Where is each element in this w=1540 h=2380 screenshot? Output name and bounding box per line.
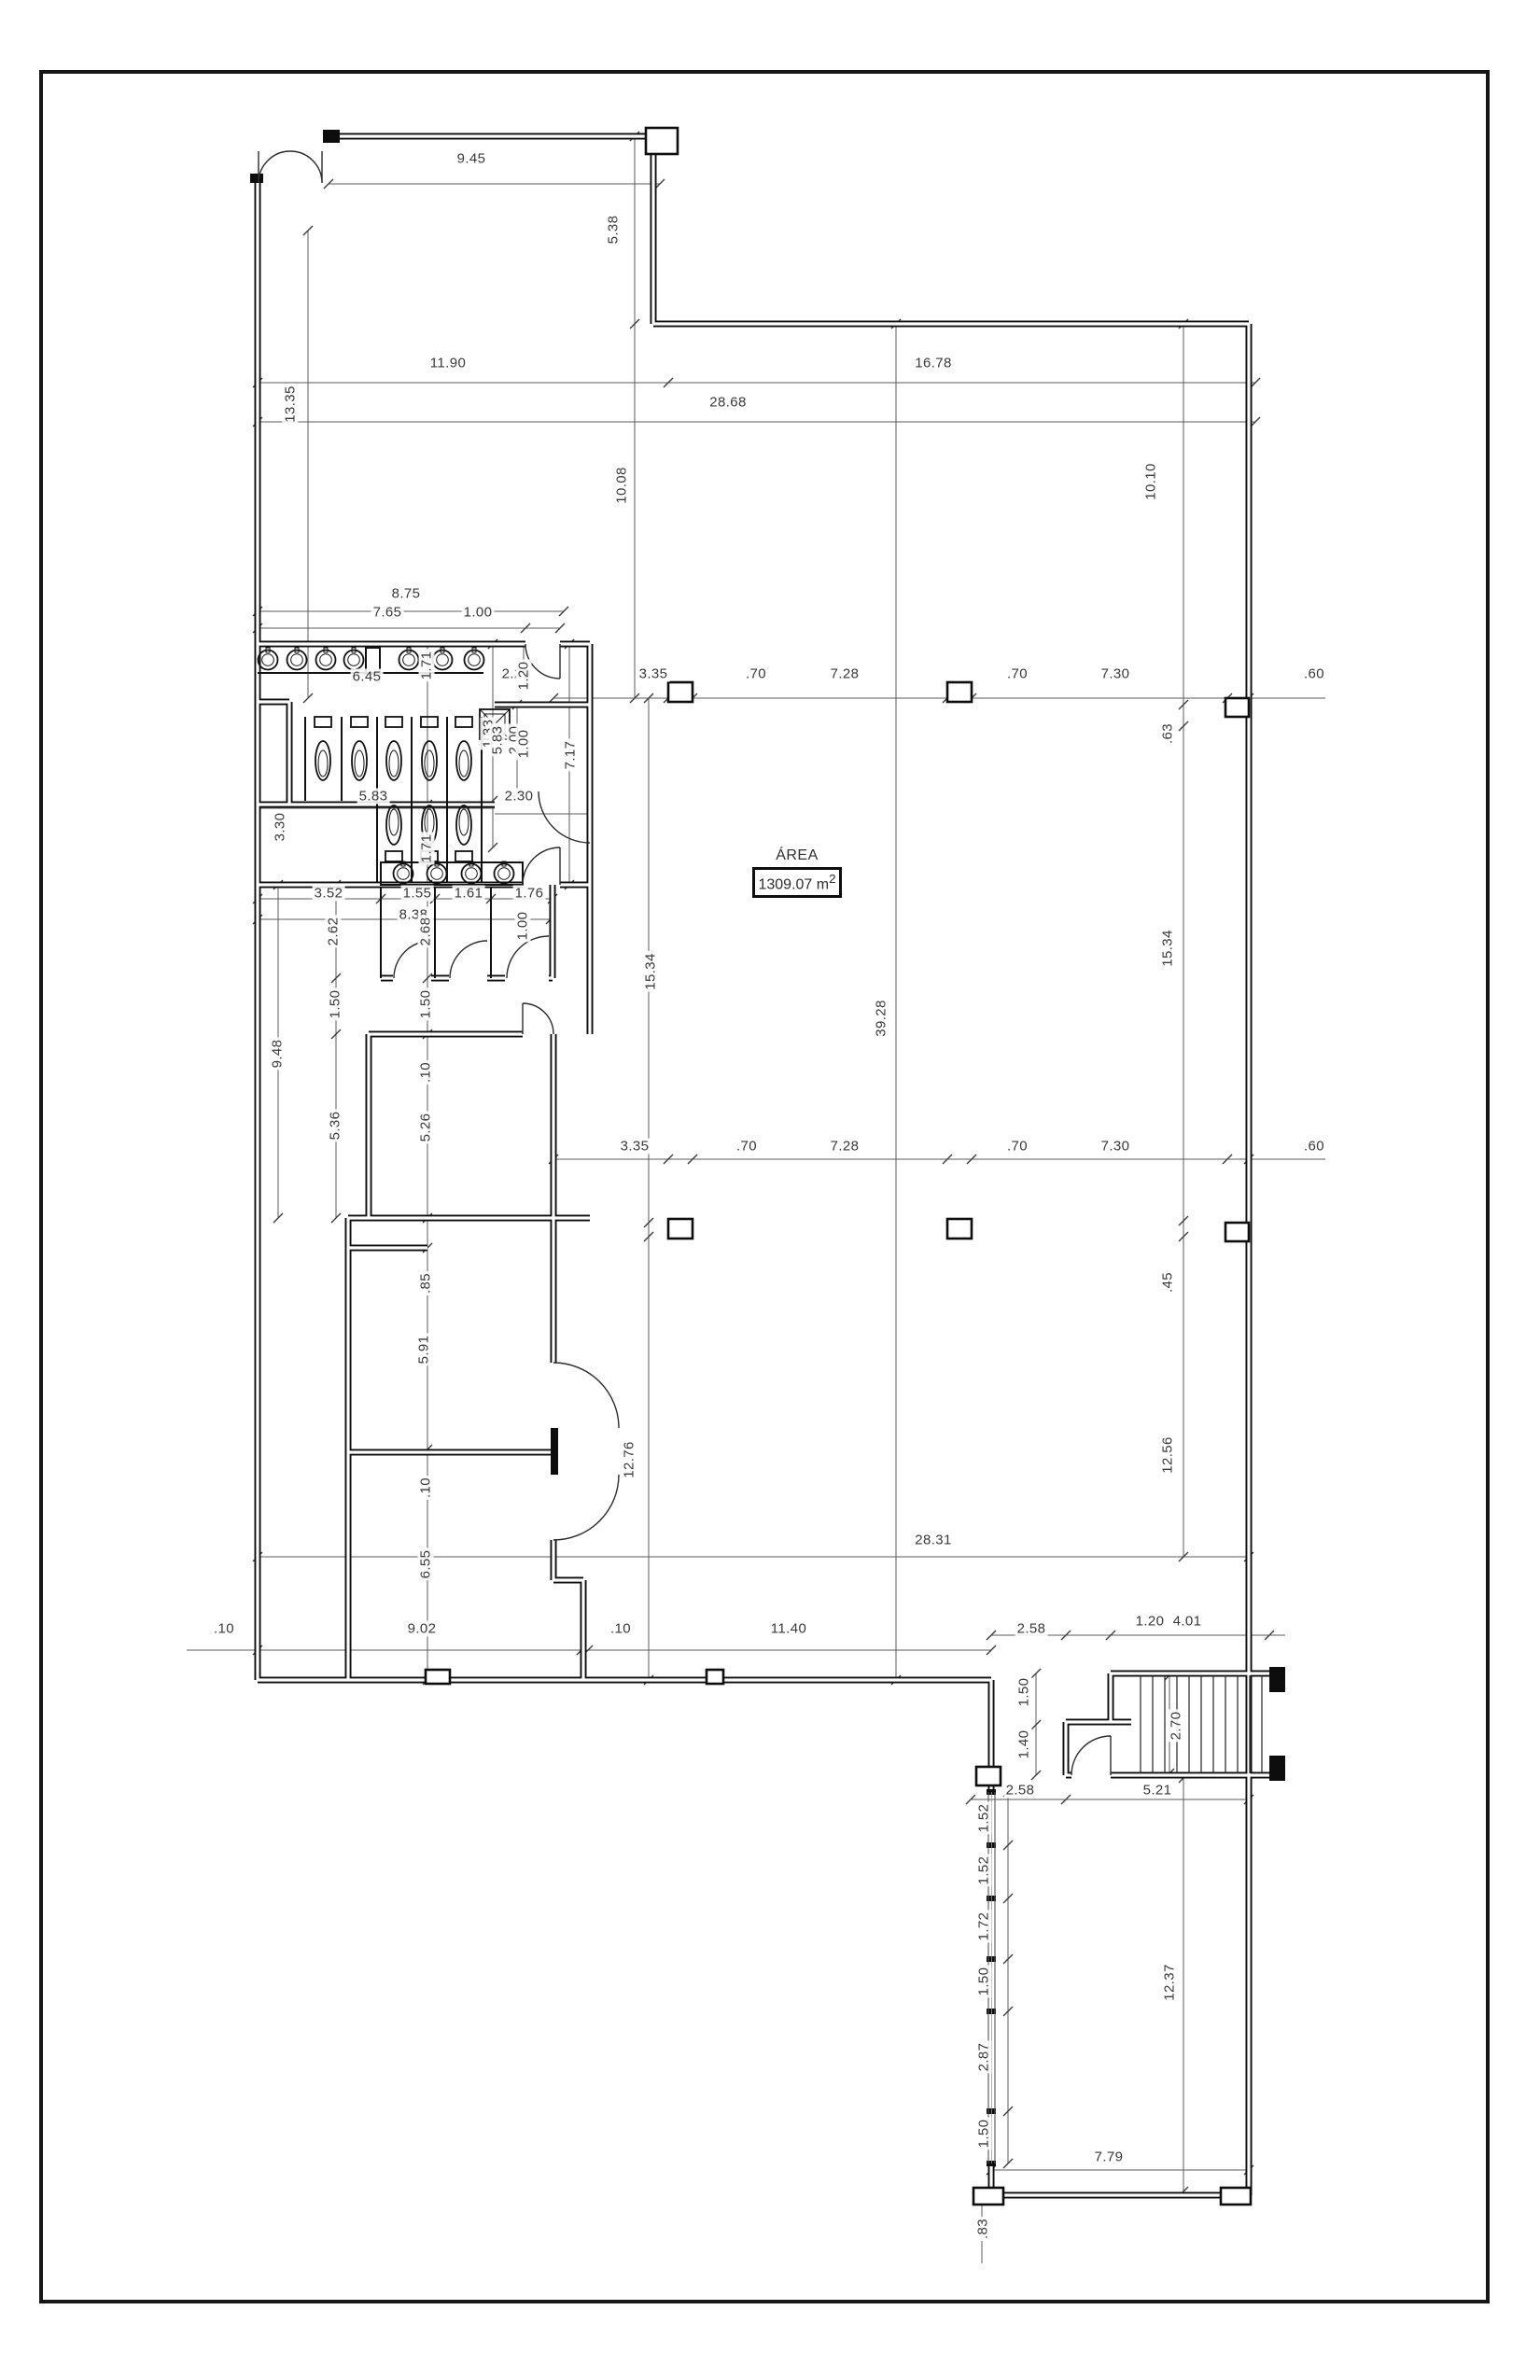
dimension-label: .83 xyxy=(975,2217,991,2241)
dimension-label: 5.91 xyxy=(416,1334,432,1366)
dimension-label: 12.76 xyxy=(622,1439,637,1480)
toilet xyxy=(315,717,331,780)
staircase xyxy=(1141,1675,1262,1773)
walls xyxy=(258,136,1269,2195)
dimension-label: 1.71 xyxy=(419,833,435,865)
dimension-label: 7.28 xyxy=(829,1139,861,1155)
wash-basin xyxy=(465,648,484,670)
dimension-label: 1.55 xyxy=(401,886,434,902)
wash-basin xyxy=(287,648,307,670)
dimension-label: 1.50 xyxy=(976,2118,992,2150)
dimension-label: 5.38 xyxy=(606,214,622,246)
area-title: ÁREA xyxy=(752,847,842,864)
dimension-label: 1.00 xyxy=(462,605,495,621)
dimension-label: 1.52 xyxy=(976,1802,992,1835)
dimension-label: .70 xyxy=(1005,666,1029,682)
dimension-label: 7.30 xyxy=(1099,666,1132,682)
dimension-label: .60 xyxy=(1302,666,1326,682)
wash-basin xyxy=(394,861,413,884)
dimension-label: 5.83 xyxy=(490,724,506,757)
dimension-label: 1.52 xyxy=(976,1855,992,1887)
dimension-label: 11.40 xyxy=(769,1621,808,1637)
dimension-lines xyxy=(187,136,1325,2263)
structural-columns xyxy=(426,128,1251,2205)
dimension-label: 15.34 xyxy=(1160,928,1176,969)
dimension-label: 1.20 xyxy=(1134,1614,1167,1630)
dimension-label: .10 xyxy=(609,1621,633,1637)
dimension-label: 1.76 xyxy=(513,886,546,902)
dimension-label: 5.26 xyxy=(418,1112,434,1144)
dimension-label: 13.35 xyxy=(283,384,299,425)
dimension-label: 39.28 xyxy=(874,998,889,1039)
dimension-label: 15.34 xyxy=(643,951,659,992)
floor-plan-drawing xyxy=(0,0,1540,2380)
dimension-label: 11.90 xyxy=(428,356,468,371)
wash-basin xyxy=(427,861,447,884)
dimension-label: 7.65 xyxy=(371,605,404,621)
dimension-label: 16.78 xyxy=(913,356,954,371)
dimension-label: .10 xyxy=(212,1621,236,1637)
wash-basin xyxy=(495,861,514,884)
dimension-label: .70 xyxy=(744,666,768,682)
wash-basin xyxy=(433,648,453,670)
dimension-label: .70 xyxy=(735,1139,759,1155)
wash-basin xyxy=(344,648,364,670)
dimension-label: 7.30 xyxy=(1099,1139,1132,1155)
dimension-label: 6.55 xyxy=(418,1548,434,1581)
dimension-label: 1.20 xyxy=(516,660,532,693)
toilet xyxy=(351,717,368,780)
dimension-label: 10.08 xyxy=(614,465,630,506)
wash-basin xyxy=(399,648,419,670)
dimension-label: 1.40 xyxy=(1016,1729,1032,1761)
dimension-label: 6.45 xyxy=(351,669,384,685)
area-value-box: 1309.07 m2 xyxy=(752,867,842,898)
dimension-label: 2.70 xyxy=(1169,1710,1184,1743)
dimension-label: 1.72 xyxy=(976,1911,992,1943)
toilet xyxy=(385,805,402,861)
dimension-label: 5.36 xyxy=(328,1110,343,1142)
dimension-label: 2.58 xyxy=(1004,1783,1037,1799)
dimension-label: 5.83 xyxy=(357,789,390,805)
dimension-label: 4.01 xyxy=(1171,1614,1204,1630)
dimension-label: 1.50 xyxy=(418,988,434,1021)
toilet xyxy=(385,717,402,780)
dimension-label: 2.87 xyxy=(976,2041,992,2074)
toilet xyxy=(455,717,472,780)
wash-basin xyxy=(259,648,278,670)
wash-basin xyxy=(316,648,336,670)
dimension-label: .10 xyxy=(418,1476,434,1500)
dimension-label: 2.58 xyxy=(1015,1621,1048,1637)
dimension-label: 12.56 xyxy=(1160,1435,1176,1476)
dimension-label: 1.50 xyxy=(328,988,343,1021)
dimension-label: .10 xyxy=(418,1060,434,1085)
dimension-label: 28.68 xyxy=(707,395,749,411)
dimension-label: 1.00 xyxy=(515,910,531,943)
dimension-label: 2.68 xyxy=(418,916,434,948)
wash-basin xyxy=(462,861,482,884)
dimension-label: 7.17 xyxy=(563,739,579,772)
dimension-label: 28.31 xyxy=(913,1533,954,1548)
dimension-label: 1.71 xyxy=(419,650,435,682)
dimension-label: 2.62 xyxy=(326,916,342,948)
floor-plan-page: ÁREA 1309.07 m2 9.4511.9016.7828.688.757… xyxy=(0,0,1540,2380)
dimension-label: 7.79 xyxy=(1093,2149,1126,2165)
dimension-label: .85 xyxy=(418,1271,434,1295)
dimension-label: 3.30 xyxy=(273,811,288,844)
dimension-label: 3.52 xyxy=(313,886,345,902)
dimension-label: 9.45 xyxy=(455,151,488,167)
dimension-label: 12.37 xyxy=(1162,1962,1178,2003)
door-swings xyxy=(259,151,1111,1775)
dimension-label: .60 xyxy=(1302,1139,1326,1155)
dimension-label: 1.50 xyxy=(1016,1676,1032,1709)
toilets xyxy=(315,717,472,861)
dimension-label: 10.10 xyxy=(1143,461,1159,502)
dimension-label: .45 xyxy=(1160,1270,1176,1295)
dimension-label: 8.75 xyxy=(390,586,423,602)
dimension-label: .70 xyxy=(1005,1139,1029,1155)
walls xyxy=(258,136,1269,2195)
toilet xyxy=(455,805,472,861)
dimension-label: 7.28 xyxy=(829,666,861,682)
dimension-label: 9.02 xyxy=(406,1621,439,1637)
dimension-label: .63 xyxy=(1160,721,1176,746)
dimension-label: 1.50 xyxy=(976,1966,992,1998)
dimension-label: 3.35 xyxy=(619,1139,651,1155)
dimension-label: 2.30 xyxy=(503,789,536,805)
area-value: 1309.07 m xyxy=(758,876,829,892)
toilet xyxy=(421,717,438,780)
area-tag: ÁREA 1309.07 m2 xyxy=(752,847,842,898)
dimension-label: 9.48 xyxy=(270,1038,286,1071)
area-value-sup: 2 xyxy=(829,872,835,886)
dimension-label: 1.00 xyxy=(516,728,532,761)
dimension-ticks xyxy=(253,132,1274,2196)
dimension-label: 1.61 xyxy=(453,886,485,902)
dimension-label: 3.35 xyxy=(637,666,670,682)
dimension-label: 5.21 xyxy=(1141,1783,1174,1799)
